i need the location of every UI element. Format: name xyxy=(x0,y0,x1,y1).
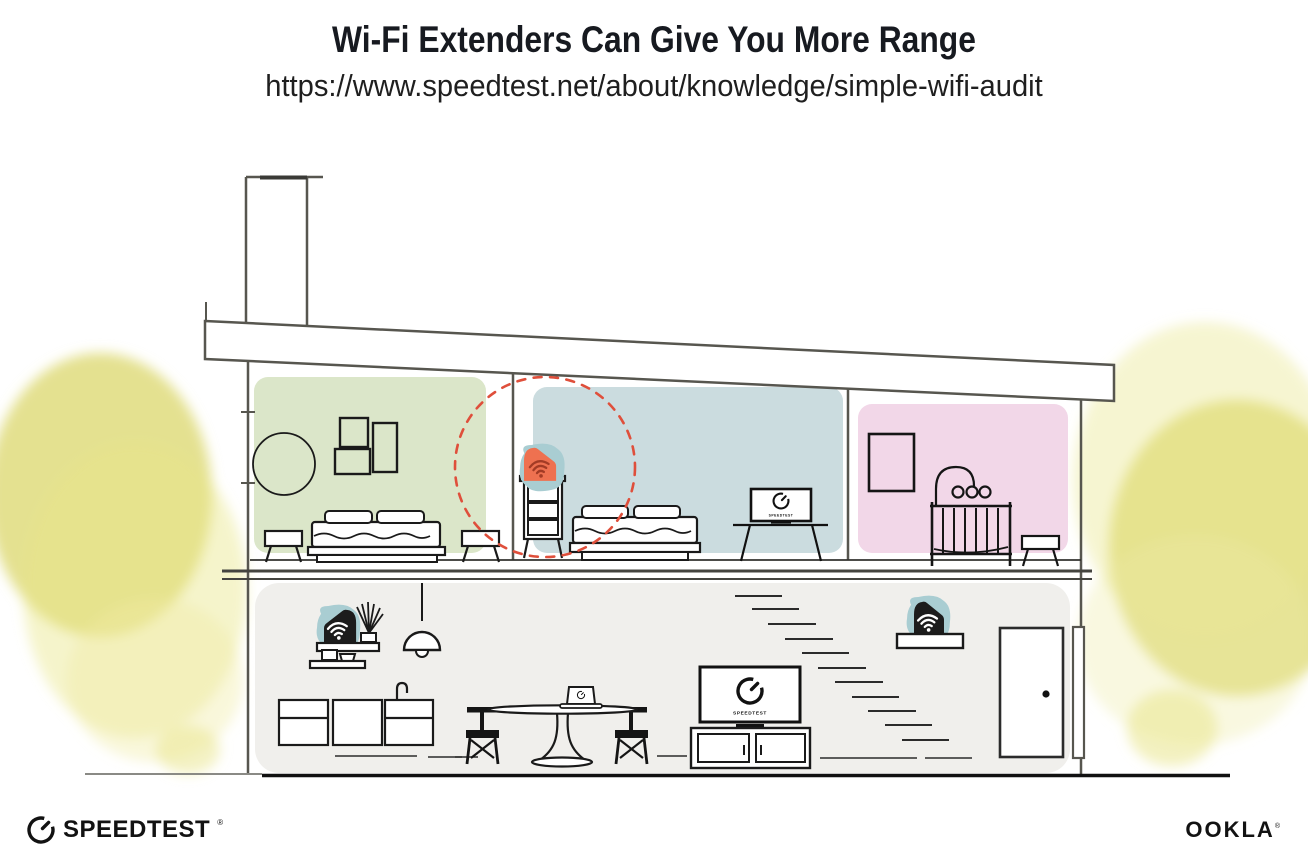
pillow xyxy=(377,511,424,523)
living-room-tv: SPEEDTEST xyxy=(700,667,800,727)
nightstand xyxy=(265,531,302,546)
nightstand xyxy=(462,531,499,546)
tv-cabinet xyxy=(691,728,810,768)
nursery-wall xyxy=(858,404,1068,553)
speedtest-gauge-icon xyxy=(26,815,56,845)
cup xyxy=(322,650,337,660)
ookla-logo: OOKLA® xyxy=(1185,817,1280,843)
living-tv-label: SPEEDTEST xyxy=(733,711,767,717)
wall-shelf xyxy=(897,634,963,648)
door-knob xyxy=(1042,690,1049,697)
wifi-extender-upstairs xyxy=(520,444,565,492)
bedroom-tv-label: SPEEDTEST xyxy=(769,514,794,518)
foliage-left xyxy=(0,353,247,774)
door xyxy=(1000,628,1063,757)
house-illustration: SPEEDTEST xyxy=(0,0,1308,861)
ookla-trademark: ® xyxy=(1275,823,1280,830)
stool xyxy=(1022,536,1059,549)
speedtest-trademark: ® xyxy=(217,818,223,827)
pillow xyxy=(325,511,372,523)
door-frame xyxy=(1073,627,1084,758)
speedtest-logo: SPEEDTEST® xyxy=(26,815,223,845)
speedtest-logo-text: SPEEDTEST xyxy=(63,816,210,844)
ookla-logo-text: OOKLA xyxy=(1185,817,1274,842)
pillow xyxy=(634,506,680,518)
wall-shelf xyxy=(310,661,365,668)
